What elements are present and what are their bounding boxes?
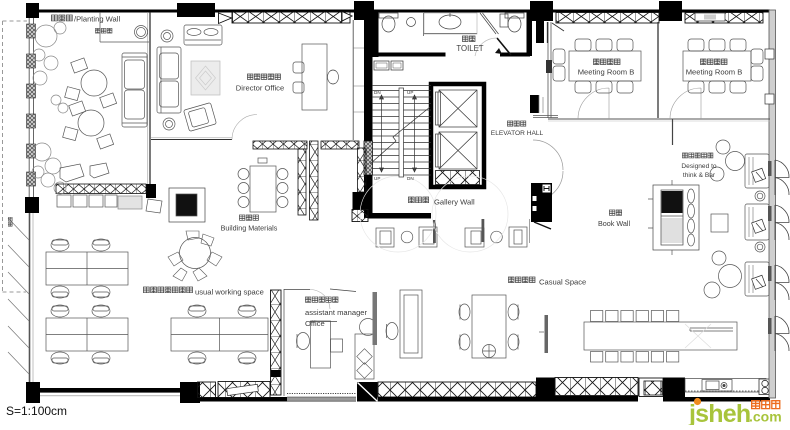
svg-text:ELEVATOR HALL: ELEVATOR HALL	[491, 130, 544, 137]
svg-text:usual working space: usual working space	[195, 288, 264, 297]
svg-text:UP: UP	[407, 90, 413, 95]
svg-text:.com: .com	[749, 409, 782, 425]
svg-text:TOILET: TOILET	[456, 44, 483, 53]
svg-text:DN: DN	[374, 90, 381, 95]
svg-text:Meeting Room B: Meeting Room B	[578, 68, 635, 77]
svg-text:/Planting Wall: /Planting Wall	[74, 15, 120, 24]
svg-text:Office: Office	[305, 319, 325, 328]
svg-text:think & Bar: think & Bar	[683, 172, 716, 179]
svg-text:Meeting Room B: Meeting Room B	[686, 68, 743, 77]
svg-text:S=1:100cm: S=1:100cm	[6, 404, 67, 418]
svg-text:Designed to: Designed to	[681, 163, 717, 170]
svg-text:Director Office: Director Office	[236, 84, 284, 93]
svg-text:Building Materials: Building Materials	[221, 224, 278, 233]
svg-text:DN: DN	[407, 176, 414, 181]
svg-text:Book Wall: Book Wall	[598, 219, 630, 228]
svg-text:assistant manager: assistant manager	[305, 308, 368, 317]
svg-text:Gallery Wall: Gallery Wall	[434, 198, 475, 207]
svg-text:UP: UP	[374, 176, 380, 181]
svg-text:Casual Space: Casual Space	[539, 278, 586, 287]
